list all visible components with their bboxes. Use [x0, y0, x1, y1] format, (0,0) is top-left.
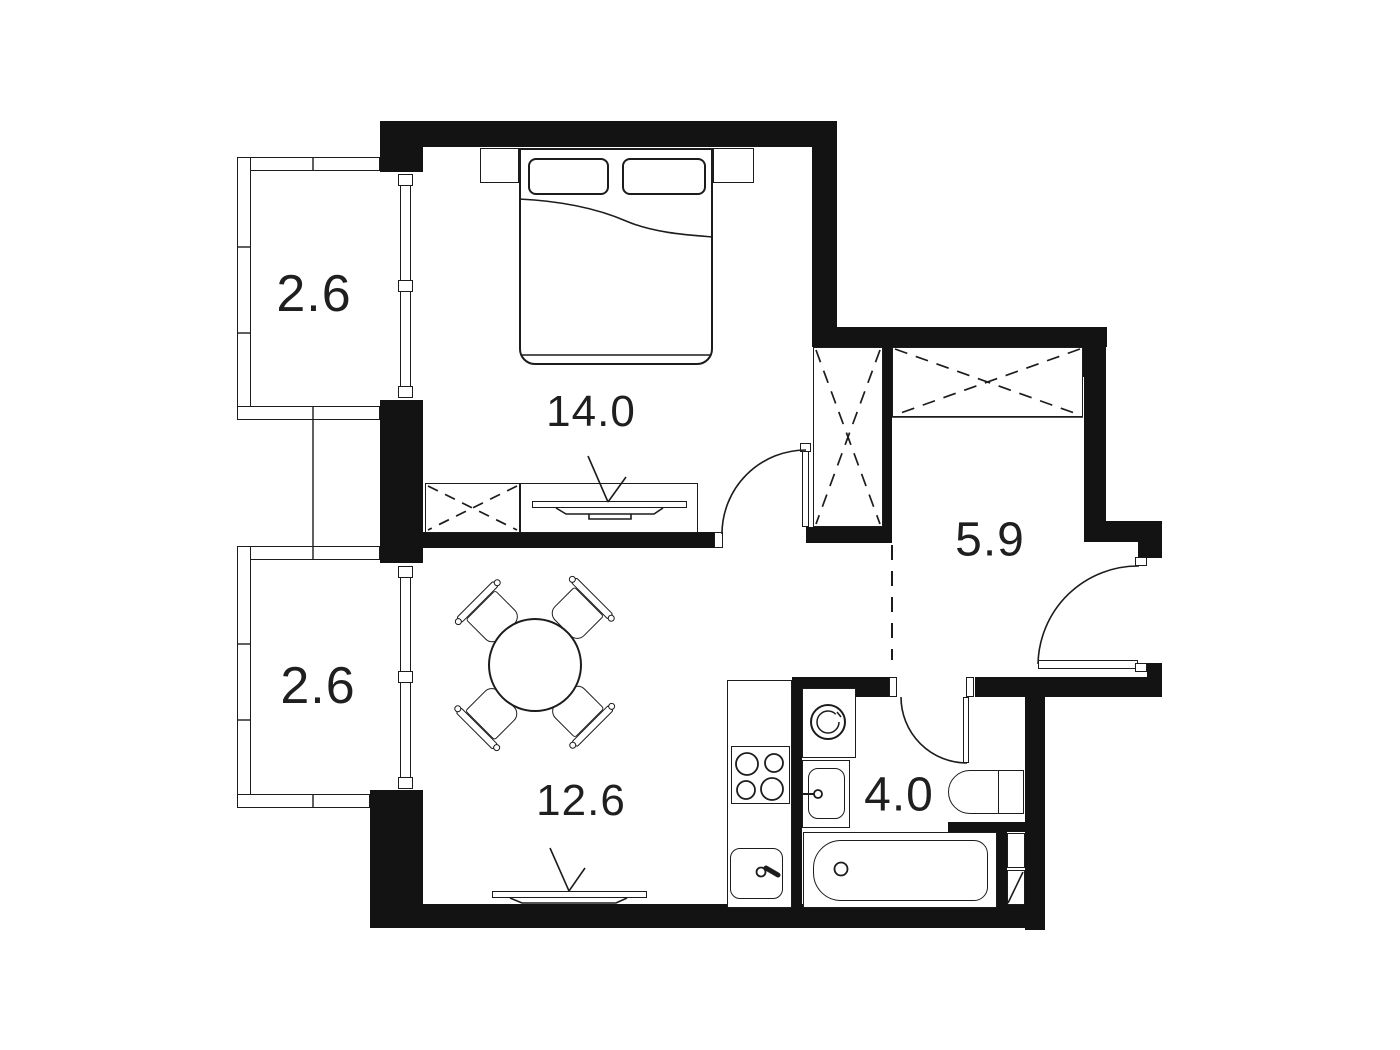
balcony-lower-frame-top — [237, 546, 380, 560]
balcony-upper-frame-top — [237, 157, 380, 171]
wall-tub-right-strip — [997, 830, 1007, 908]
wall-toilet-bar — [948, 822, 1025, 832]
door-frame — [966, 677, 974, 697]
wall-left-block-mid — [380, 400, 423, 563]
wall-bedroom-bottom — [423, 532, 715, 548]
wall-right-upper — [1084, 347, 1106, 521]
duct-shaft — [1007, 833, 1025, 868]
tv-console — [520, 483, 698, 533]
wall-corridor-bottom — [975, 677, 1162, 697]
wall-left-block-top — [380, 121, 423, 172]
wall-left-block-bottom — [370, 790, 423, 928]
window-frame-block — [398, 566, 413, 578]
living-window-sash — [400, 567, 411, 677]
balcony-lower-frame-left — [237, 546, 251, 808]
window-frame-block — [398, 386, 413, 398]
nightstand — [713, 148, 754, 183]
wall-upper-right-horizontal — [812, 327, 1107, 347]
room-area-label-living: 12.6 — [536, 776, 626, 826]
nightstand — [480, 148, 519, 183]
wall-kitchen-divider — [792, 680, 802, 908]
balcony-upper-frame-bottom — [237, 406, 380, 420]
bedroom-window-sash — [400, 286, 411, 397]
door-frame — [889, 677, 897, 697]
pillow — [528, 158, 609, 195]
tv-antenna — [550, 848, 585, 891]
stove-icon — [731, 746, 790, 804]
room-area-label-hallway: 5.9 — [955, 513, 1025, 568]
bathroom-door-leaf — [963, 697, 969, 763]
tv-stand — [510, 898, 627, 903]
door-frame — [1135, 557, 1147, 566]
duct-shaft — [1007, 870, 1025, 905]
window-frame-block — [398, 280, 413, 292]
toilet-tank — [998, 770, 1024, 814]
wardrobe — [892, 347, 1083, 417]
entry-door-leaf — [1038, 660, 1138, 669]
wall-wardrobe-bottom-bar — [806, 527, 892, 543]
wall-wardrobe-right-strip — [883, 345, 892, 543]
window-frame-block — [398, 671, 413, 683]
kitchen-sink-icon — [730, 848, 783, 899]
window-frame-block — [398, 174, 413, 186]
door-frame — [714, 532, 723, 548]
pillow — [622, 158, 706, 195]
room-area-label-bathroom: 4.0 — [864, 768, 934, 823]
window-frame-block — [398, 777, 413, 789]
floor-plan: 2.6 14.0 2.6 5.9 12.6 4.0 — [0, 0, 1400, 1050]
room-area-label-bedroom: 14.0 — [546, 387, 636, 437]
living-window-sash — [400, 677, 411, 788]
bathtub-basin — [813, 840, 988, 901]
balcony-lower-frame-bottom — [237, 794, 370, 808]
dresser — [425, 483, 520, 533]
tv-icon — [492, 891, 647, 898]
wall-top — [380, 121, 837, 147]
tv-icon — [532, 501, 687, 508]
door-swing — [722, 450, 806, 534]
door-swing — [901, 697, 967, 763]
door-frame — [1135, 663, 1147, 672]
bathroom-sink-basin — [808, 768, 845, 819]
wall-entry-step-v — [1138, 542, 1162, 558]
wall-bathroom-right — [1025, 697, 1045, 930]
dining-table — [488, 618, 582, 712]
room-area-label-balcony-lower: 2.6 — [280, 656, 355, 716]
door-frame — [800, 443, 811, 452]
bedroom-door-leaf — [802, 450, 809, 527]
toilet-icon — [948, 770, 1000, 814]
balcony-upper-frame-left — [237, 157, 251, 420]
bedroom-window-sash — [400, 176, 411, 286]
door-swing — [1038, 566, 1139, 664]
wall-bedroom-right — [812, 147, 837, 327]
washing-machine-icon — [802, 688, 856, 758]
room-area-label-balcony-upper: 2.6 — [276, 264, 351, 324]
wardrobe — [813, 347, 883, 527]
wall-entry-step-h — [1084, 521, 1162, 542]
